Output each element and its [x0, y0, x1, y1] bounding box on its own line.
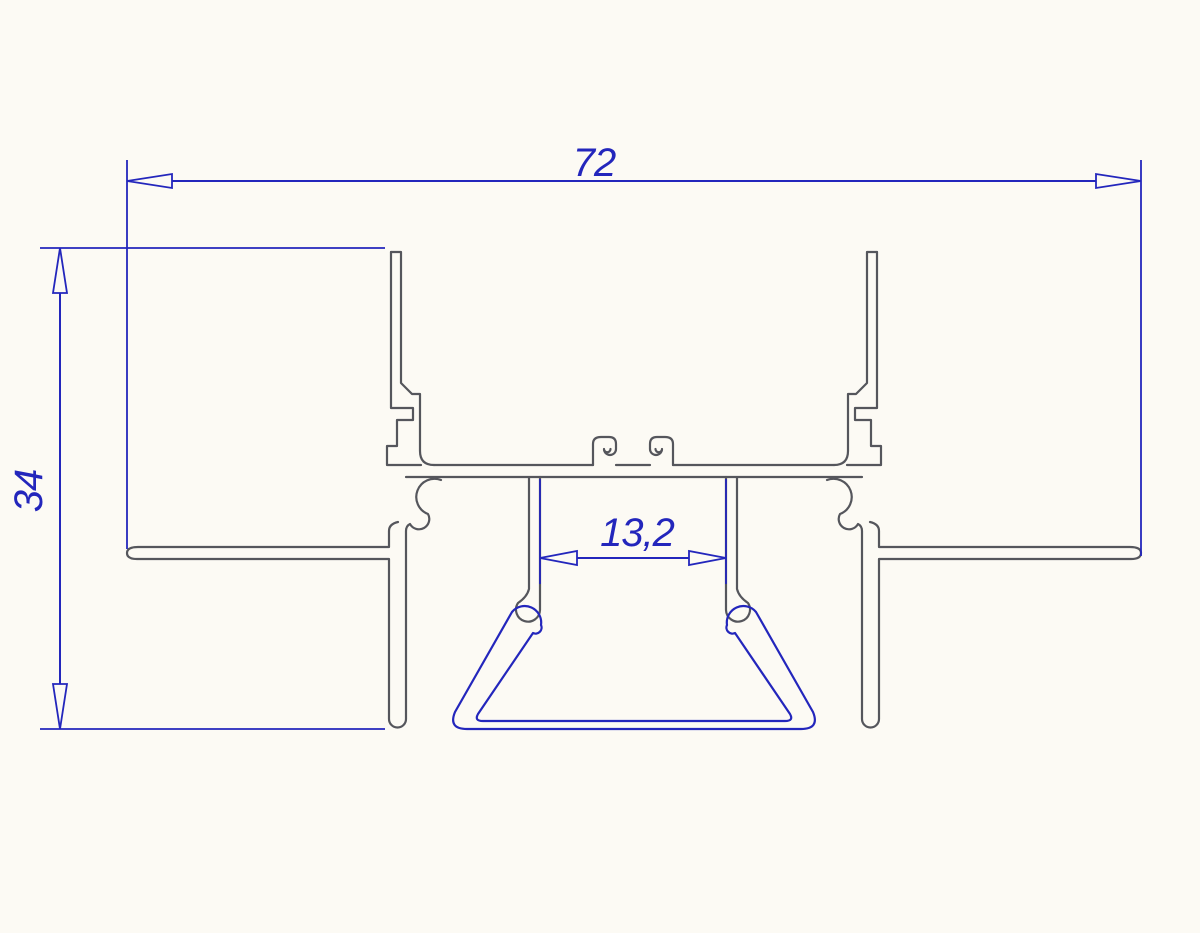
dim-72-label: 72	[573, 141, 616, 185]
profile-drawing-canvas: 72 34 13,2	[0, 0, 1200, 933]
cover-clip	[453, 606, 815, 729]
cover-clip-outline	[453, 606, 815, 729]
center-snap-hook-left	[593, 437, 616, 465]
right-curl-leg-flange	[827, 479, 1141, 728]
left-fin-outer-edge	[387, 252, 421, 465]
dim-72-arrowhead-right-icon	[1096, 174, 1141, 188]
dim-34-arrowhead-bottom-icon	[53, 684, 67, 729]
right-fin-outer-edge	[847, 252, 881, 465]
profile-outline	[127, 252, 1141, 728]
drawing-sheet: 72 34 13,2	[0, 0, 1200, 933]
channel-wall-left	[516, 477, 540, 622]
dimension-overall-height: 34	[7, 248, 385, 729]
dim-13-label: 13,2	[600, 511, 675, 555]
dim-72-arrowhead-left-icon	[127, 174, 172, 188]
dimension-channel-width: 13,2	[540, 479, 726, 584]
left-curl-leg-flange	[127, 479, 441, 728]
dim-13-arrowhead-right-icon	[689, 551, 726, 565]
dim-13-arrowhead-left-icon	[540, 551, 577, 565]
center-snap-hook-right	[650, 437, 673, 465]
channel-wall-right	[726, 477, 750, 622]
dim-34-arrowhead-top-icon	[53, 248, 67, 293]
dim-34-label: 34	[7, 470, 51, 513]
dimension-overall-width: 72	[127, 141, 1141, 556]
